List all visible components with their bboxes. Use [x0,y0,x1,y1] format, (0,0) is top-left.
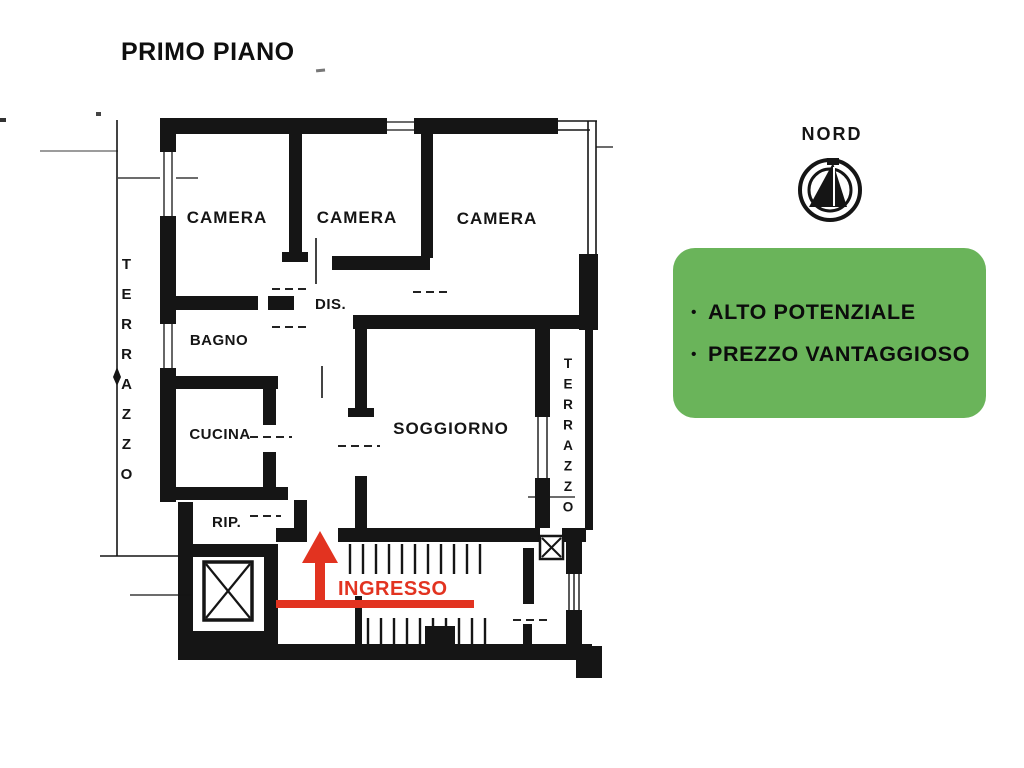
highlight-item-label: ALTO POTENZIALE [708,300,916,325]
highlight-item-label: PREZZO VANTAGGIOSO [708,342,970,367]
highlight-item: • PREZZO VANTAGGIOSO [685,342,986,367]
highlight-card: • ALTO POTENZIALE • PREZZO VANTAGGIOSO [673,248,986,418]
terrace-label-right: TERRAZZO [561,356,575,520]
terrace-label-left: TERRAZZO [119,256,134,496]
room-label-camera-2: CAMERA [312,208,402,228]
elevator-shaft [130,544,278,644]
room-label-rip: RIP. [212,514,241,531]
entrance-label: INGRESSO [338,578,448,601]
floor-plan-page: PRIMO PIANO CAMERA CAMERA CAMERA DIS. BA… [0,0,1024,768]
north-label: NORD [800,124,864,145]
highlight-item: • ALTO POTENZIALE [685,300,986,325]
room-label-bagno: BAGNO [180,332,258,349]
room-label-camera-3: CAMERA [452,209,542,229]
room-label-soggiorno: SOGGIORNO [387,419,515,439]
bullet-icon: • [685,346,703,363]
north-compass-icon [800,158,860,220]
room-label-dis: DIS. [315,296,346,313]
stairs-upper [350,544,480,574]
page-title: PRIMO PIANO [121,38,295,67]
bullet-icon: • [685,304,703,321]
stairs-lower [368,618,485,644]
room-label-cucina: CUCINA [180,426,260,443]
room-label-camera-1: CAMERA [182,208,272,228]
